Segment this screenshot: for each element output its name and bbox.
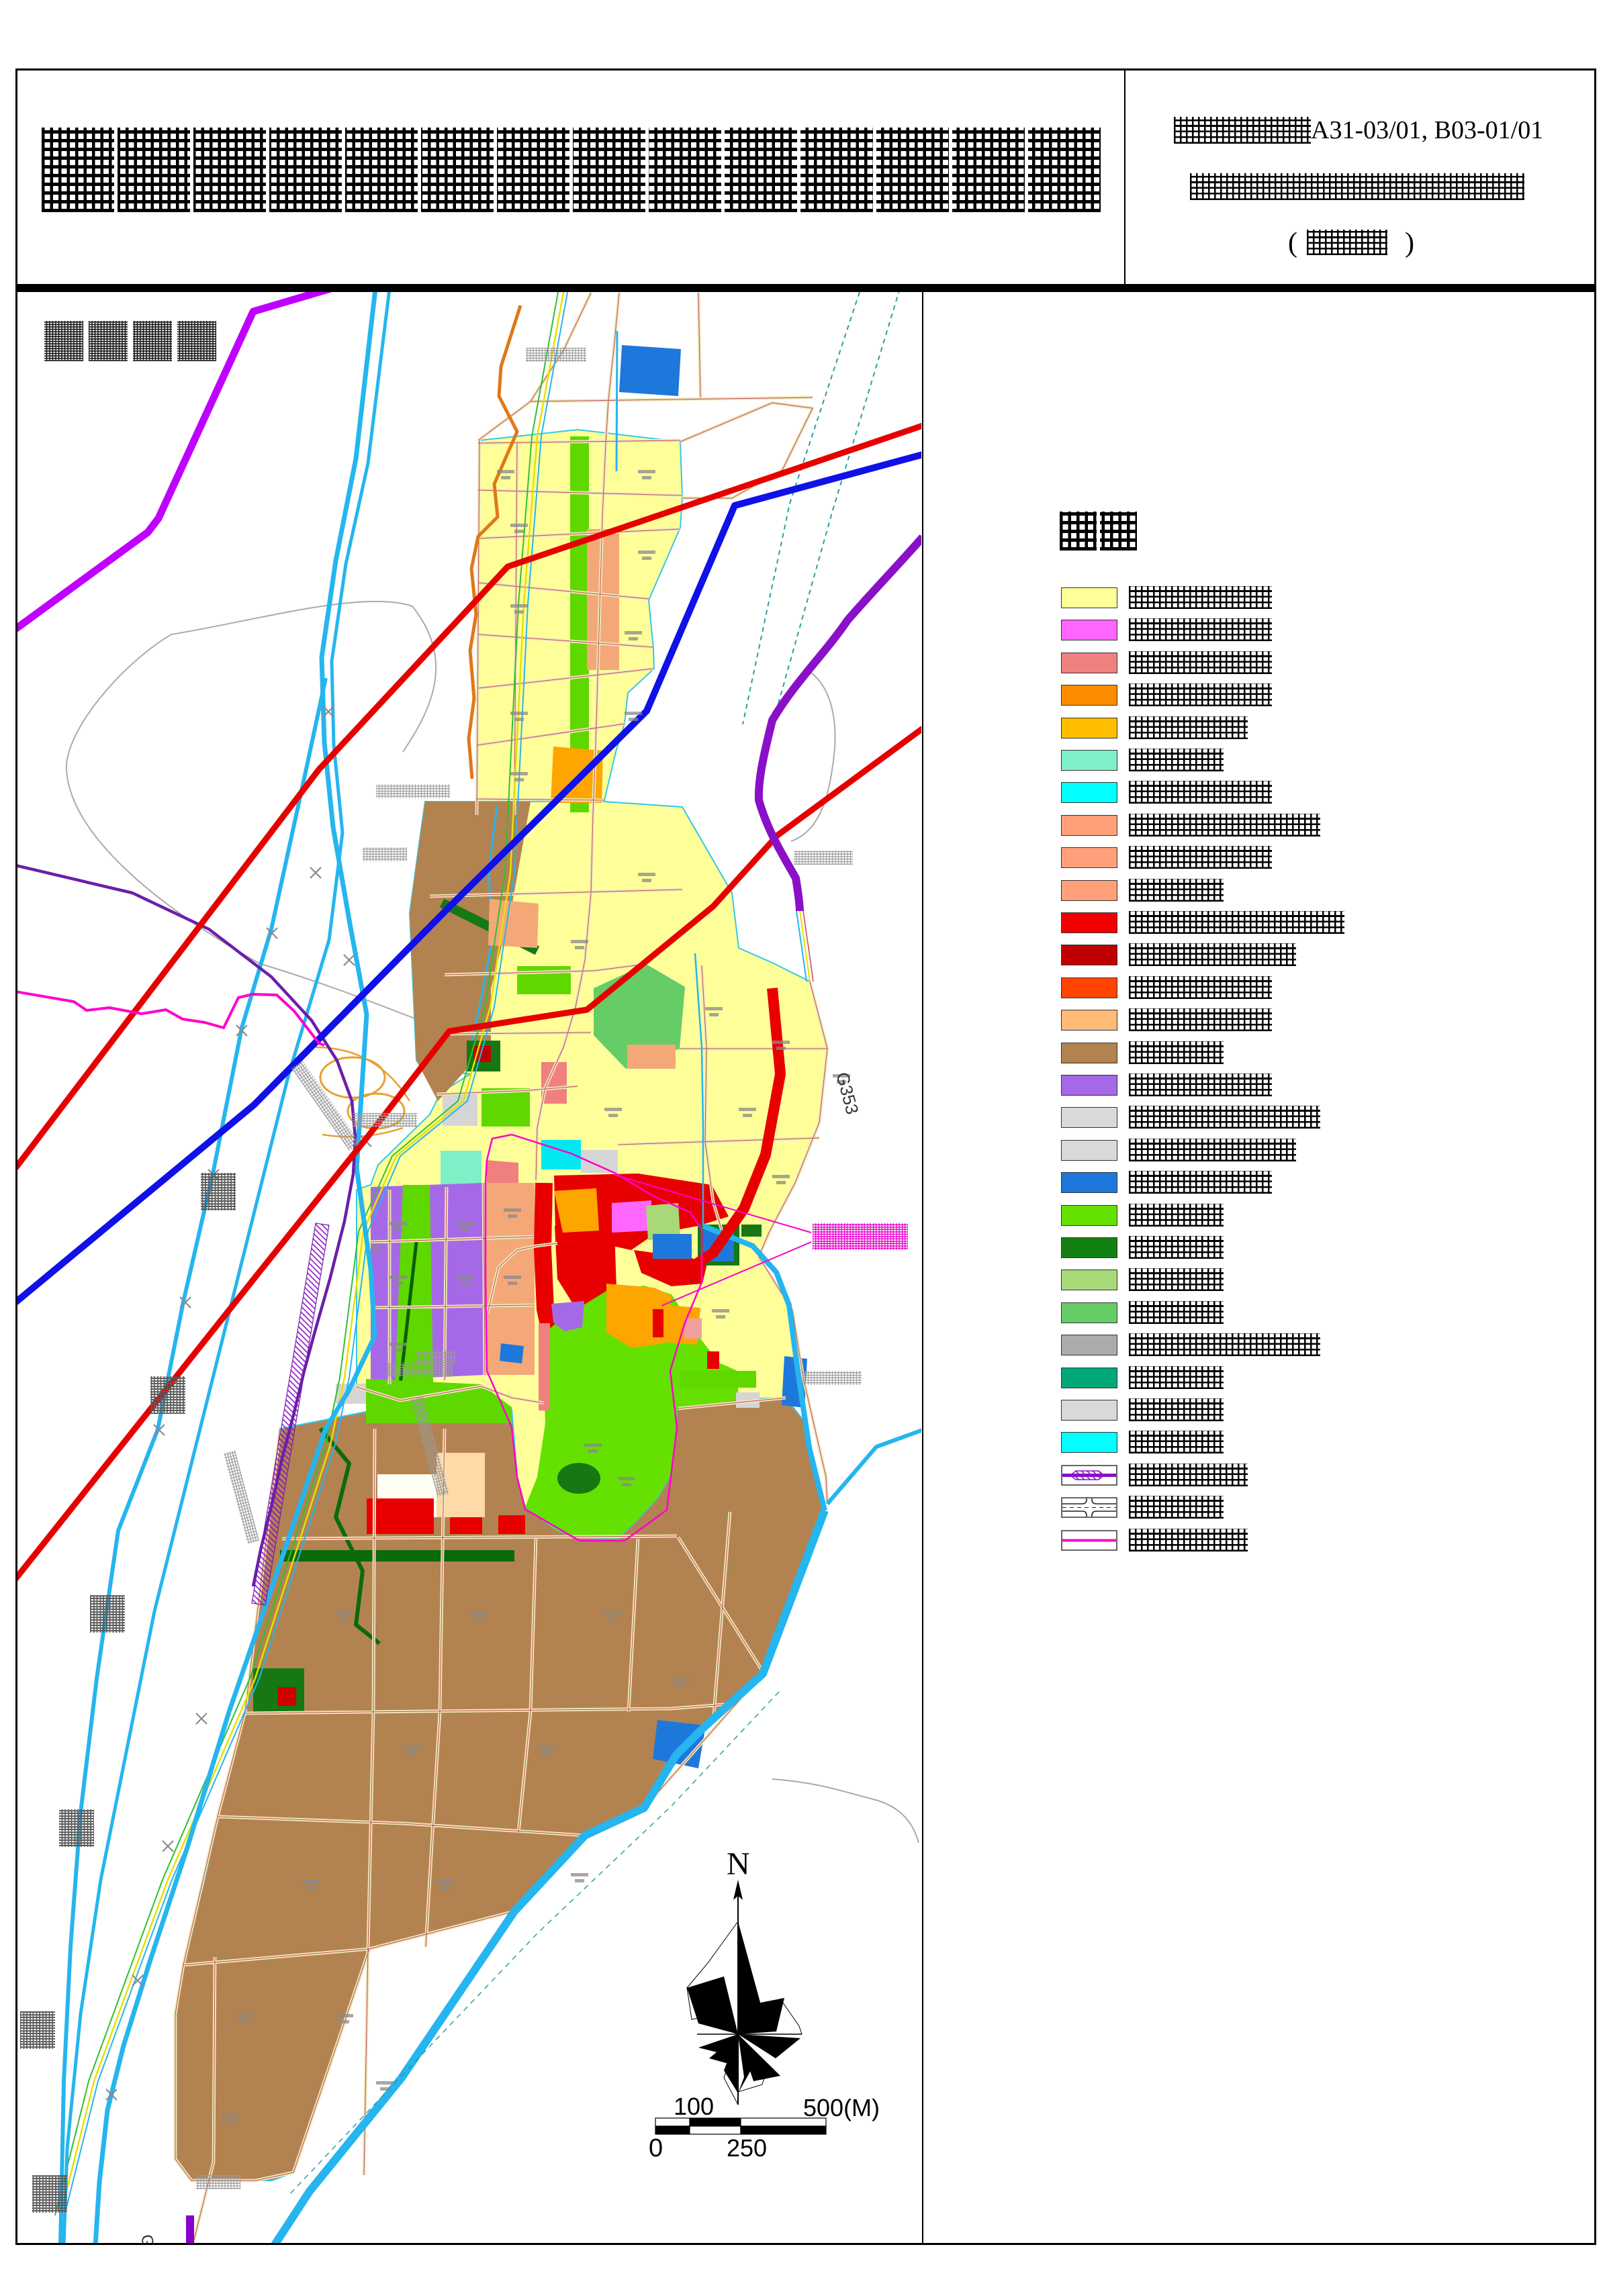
svg-text:0: 0 bbox=[649, 2134, 663, 2162]
svg-text:500(M): 500(M) bbox=[803, 2094, 880, 2121]
svg-text:250: 250 bbox=[727, 2134, 767, 2162]
svg-text:100: 100 bbox=[674, 2093, 714, 2120]
svg-text:N: N bbox=[727, 1846, 750, 1882]
svg-text:G353: G353 bbox=[832, 1070, 862, 1116]
svg-text:G353: G353 bbox=[137, 2233, 162, 2275]
